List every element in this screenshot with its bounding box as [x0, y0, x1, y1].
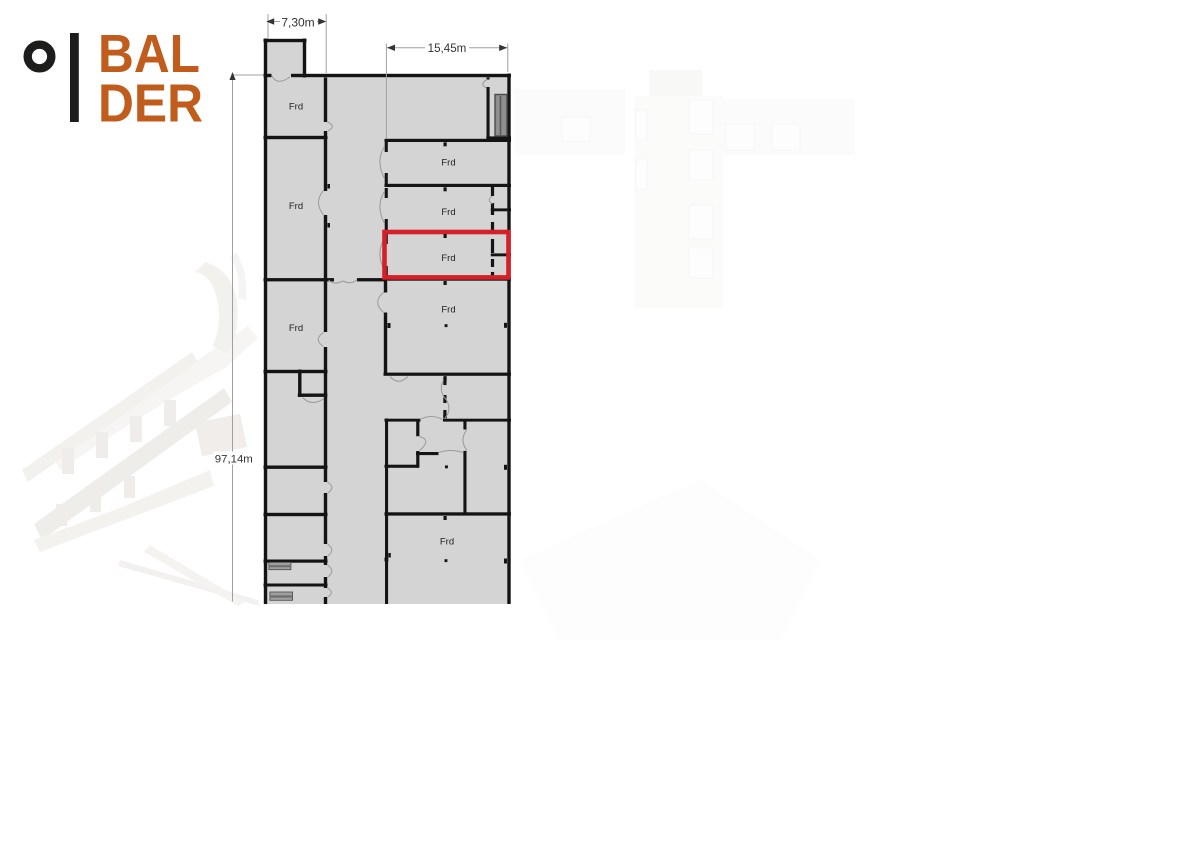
svg-text:Frd: Frd [289, 323, 303, 334]
svg-text:7,30m: 7,30m [281, 15, 314, 29]
svg-text:Frd: Frd [441, 305, 455, 316]
svg-text:Frd: Frd [289, 201, 303, 212]
svg-text:Frd: Frd [441, 253, 455, 264]
svg-text:97,14m: 97,14m [215, 453, 253, 465]
svg-text:Frd: Frd [440, 537, 454, 548]
svg-text:Frd: Frd [289, 102, 303, 113]
svg-text:15,45m: 15,45m [428, 42, 467, 55]
svg-text:Frd: Frd [441, 207, 455, 218]
svg-text:Frd: Frd [441, 158, 455, 169]
svg-text:DER: DER [98, 74, 203, 134]
